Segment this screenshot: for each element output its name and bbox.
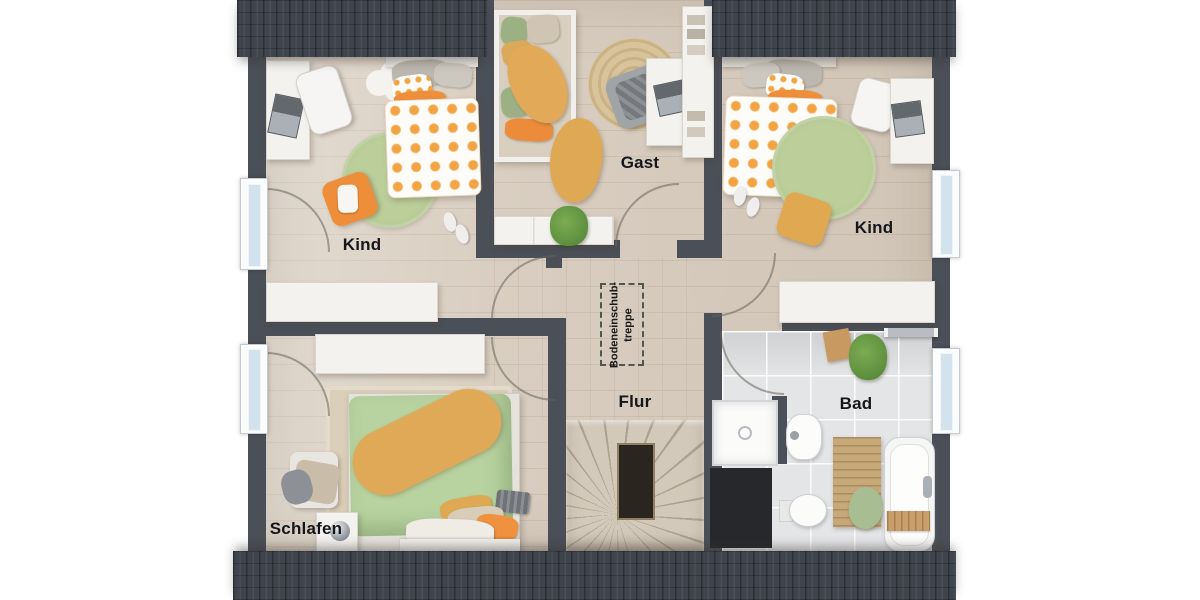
room-label-kind-right: Kind [855,218,894,238]
toilet [779,494,825,526]
room-label-kind-left: Kind [343,235,382,255]
room-label-schlafen: Schlafen [270,519,342,539]
stair-void [617,443,655,520]
laundry-chair [282,452,340,510]
slippers [734,186,760,220]
room-label-flur: Flur [619,392,652,412]
roof-edge-top-left [237,0,487,57]
attic-hatch-label-line1: Bodeneinschub- [608,281,622,367]
potted-plant [849,334,887,380]
roof-edge-bottom [233,551,956,600]
shower [712,400,778,466]
attic-hatch: Bodeneinschub- treppe [600,283,644,366]
window [240,178,268,270]
window [932,348,960,434]
utility-shaft [710,468,772,548]
room-label-gast: Gast [621,153,660,173]
attic-hatch-label-line2: treppe [622,281,636,367]
exterior-wall-left [248,40,266,551]
sideboard [266,282,438,322]
laptop [891,100,925,138]
attic-hatch-label: Bodeneinschub- treppe [608,281,636,367]
wardrobe [315,334,485,374]
floor-plan: Bodeneinschub- treppe Kind Gast Kind Sch… [0,0,1200,600]
sideboard [779,281,935,323]
bookshelf [682,6,714,158]
slippers [444,212,470,246]
window [932,170,960,258]
bed [386,57,478,195]
window [240,344,268,434]
room-label-bad: Bad [840,394,873,414]
double-bed [348,393,518,551]
bathtub [884,437,935,552]
washbasin [786,414,822,460]
roof-edge-top-right [712,0,956,57]
towel-rail [884,328,938,337]
potted-plant [550,206,588,246]
